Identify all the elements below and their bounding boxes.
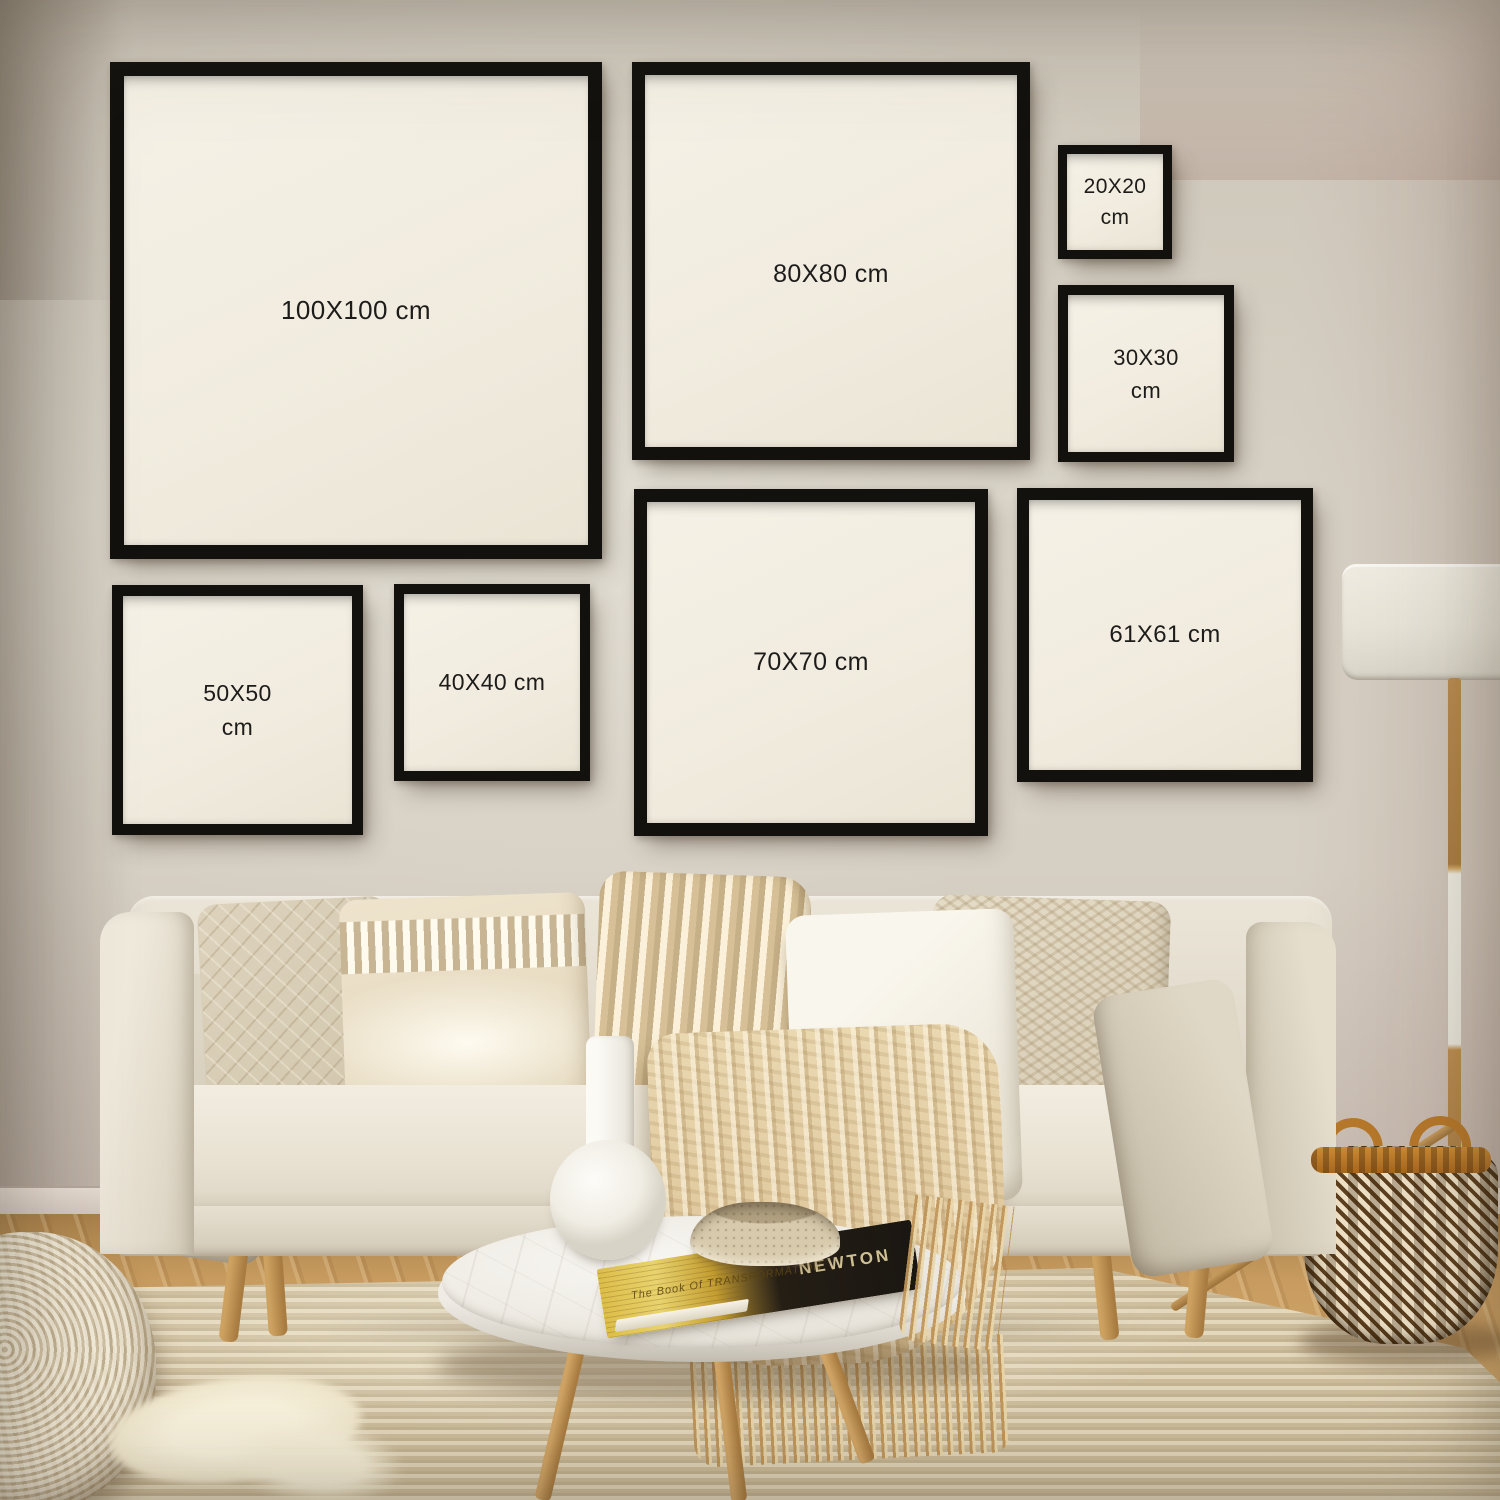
ceramic-bowl <box>690 1202 840 1266</box>
vase <box>550 1140 666 1260</box>
throw-fringe-on-table <box>897 1194 1014 1351</box>
frame-canvas: 100X100 cm <box>124 76 588 545</box>
frame-size-label: 40X40 cm <box>439 665 546 700</box>
frame-canvas: 80X80 cm <box>645 75 1017 447</box>
wall-shadow-right <box>1140 0 1500 180</box>
frame-canvas: 40X40 cm <box>404 594 580 771</box>
sofa-armrest-left <box>100 912 194 1254</box>
frame-size-label: 80X80 cm <box>773 256 889 294</box>
frame-70x70: 70X70 cm <box>634 489 988 836</box>
frame-canvas: 30X30 cm <box>1068 295 1224 452</box>
basket-rim <box>1311 1147 1491 1173</box>
frame-size-label: 70X70 cm <box>753 644 869 682</box>
frame-30x30: 30X30 cm <box>1058 285 1234 462</box>
wall-shadow-left <box>0 0 120 300</box>
frame-size-label: 100X100 cm <box>281 291 431 330</box>
frame-size-label: 50X50 cm <box>195 676 281 745</box>
frame-size-label: 30X30 cm <box>1106 341 1186 407</box>
frame-canvas: 70X70 cm <box>647 502 975 823</box>
living-room-frame-size-mockup: 100X100 cm 80X80 cm 20X20 cm 30X30 cm 50… <box>0 0 1500 1500</box>
frame-size-label: 61X61 cm <box>1109 617 1220 653</box>
frame-50x50: 50X50 cm <box>112 585 363 835</box>
frame-80x80: 80X80 cm <box>632 62 1030 460</box>
frame-100x100: 100X100 cm <box>110 62 602 559</box>
floor-lamp-shade <box>1342 564 1500 680</box>
frame-canvas: 50X50 cm <box>123 596 352 824</box>
frame-40x40: 40X40 cm <box>394 584 590 781</box>
frame-61x61: 61X61 cm <box>1017 488 1313 782</box>
frame-size-label: 20X20 cm <box>1079 171 1151 234</box>
frame-canvas: 20X20 cm <box>1067 154 1163 250</box>
frame-canvas: 61X61 cm <box>1029 500 1301 770</box>
frame-20x20: 20X20 cm <box>1058 145 1172 259</box>
